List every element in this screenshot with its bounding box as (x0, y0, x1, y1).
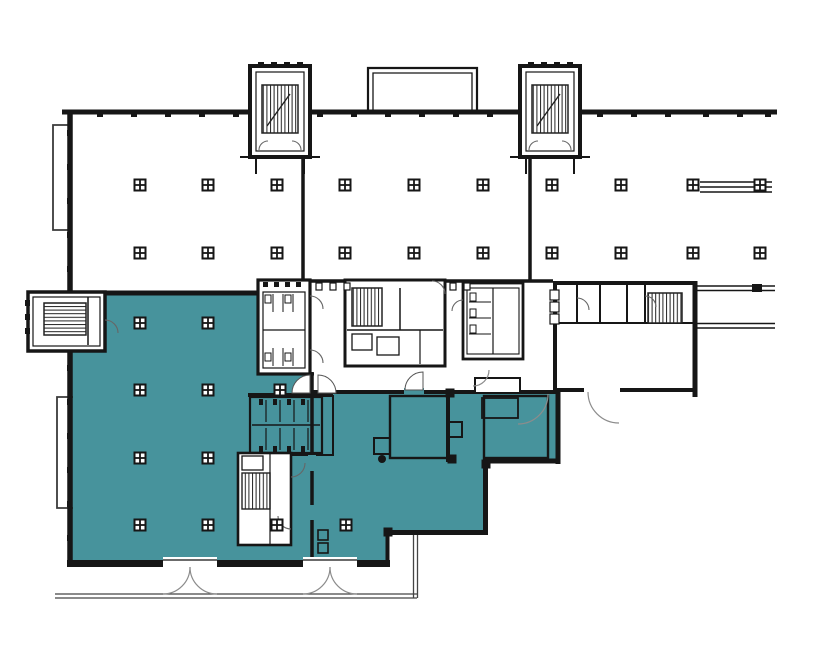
column (615, 179, 628, 192)
floor-plan-page (0, 0, 826, 662)
wall-column (482, 460, 491, 469)
wall-column (448, 455, 457, 464)
column (202, 384, 215, 397)
stair-run (242, 473, 270, 509)
column (687, 247, 700, 260)
column (202, 317, 215, 330)
column (408, 179, 421, 192)
column (134, 519, 147, 532)
column (687, 179, 700, 192)
north-stair-tower-left (240, 62, 320, 174)
column (754, 179, 767, 192)
column (134, 384, 147, 397)
column (274, 384, 287, 397)
column (408, 247, 421, 260)
column (546, 179, 559, 192)
column (271, 519, 284, 532)
floor-plan-svg (0, 0, 826, 662)
west-stair-tower (25, 292, 105, 351)
core-stair-center (345, 280, 445, 366)
column (339, 179, 352, 192)
core-restroom-upper (258, 280, 310, 374)
column (340, 519, 353, 532)
column (477, 179, 490, 192)
column (134, 452, 147, 465)
column (271, 247, 284, 260)
wall-column (446, 389, 455, 398)
core-restroom-upper-2 (463, 283, 523, 359)
column (546, 247, 559, 260)
column (134, 179, 147, 192)
column (202, 247, 215, 260)
north-stair-tower-right (510, 62, 590, 174)
column (202, 452, 215, 465)
column (134, 317, 147, 330)
column (754, 247, 767, 260)
round-column (378, 455, 386, 463)
column (615, 247, 628, 260)
column (271, 179, 284, 192)
column (477, 247, 490, 260)
column (134, 247, 147, 260)
service-box (475, 378, 520, 393)
column (202, 179, 215, 192)
wall-column (384, 528, 393, 537)
column (339, 247, 352, 260)
column (202, 519, 215, 532)
